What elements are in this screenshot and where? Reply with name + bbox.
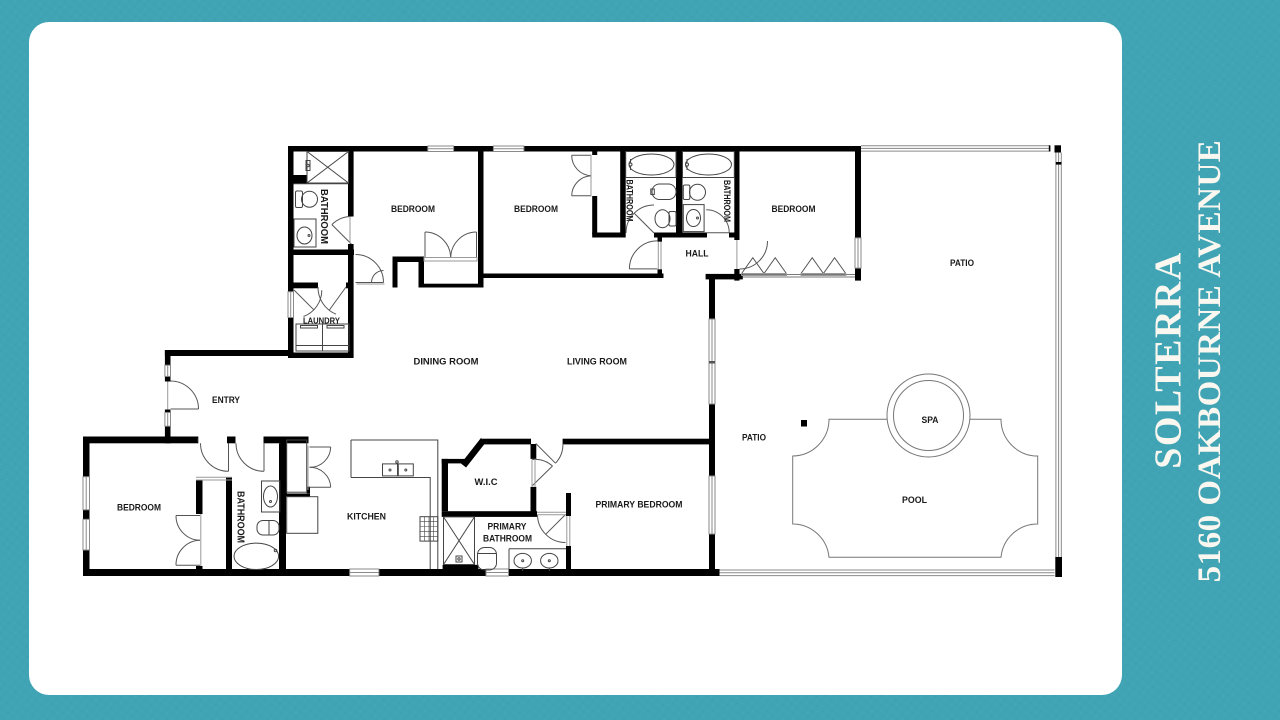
- svg-text:BATHROOM: BATHROOM: [318, 189, 329, 244]
- svg-text:BATHROOM: BATHROOM: [625, 180, 635, 222]
- svg-text:DINING ROOM: DINING ROOM: [414, 357, 479, 368]
- svg-text:PRIMARY: PRIMARY: [488, 522, 528, 533]
- svg-text:BEDROOM: BEDROOM: [514, 204, 558, 215]
- svg-text:ENTRY: ENTRY: [212, 395, 241, 406]
- svg-text:PATIO: PATIO: [742, 433, 766, 443]
- svg-text:LAUNDRY: LAUNDRY: [303, 316, 340, 326]
- svg-text:PRIMARY BEDROOM: PRIMARY BEDROOM: [596, 500, 683, 511]
- svg-text:SPA: SPA: [922, 415, 939, 425]
- svg-text:HALL: HALL: [686, 249, 709, 260]
- svg-text:BATHROOM: BATHROOM: [235, 491, 246, 543]
- svg-text:BEDROOM: BEDROOM: [117, 503, 161, 514]
- svg-text:SOLTERRA: SOLTERRA: [1148, 251, 1190, 469]
- svg-text:KITCHEN: KITCHEN: [347, 512, 386, 523]
- svg-text:5160 OAKBOURNE AVENUE: 5160 OAKBOURNE AVENUE: [1192, 140, 1228, 583]
- svg-text:LIVING ROOM: LIVING ROOM: [567, 357, 627, 368]
- svg-text:BEDROOM: BEDROOM: [391, 204, 435, 215]
- svg-text:BEDROOM: BEDROOM: [772, 204, 816, 215]
- svg-text:BATHROOM: BATHROOM: [722, 180, 732, 222]
- svg-text:POOL: POOL: [902, 495, 927, 505]
- svg-text:BATHROOM: BATHROOM: [483, 534, 532, 545]
- svg-text:PATIO: PATIO: [950, 258, 974, 268]
- svg-text:W.I.C: W.I.C: [475, 477, 498, 488]
